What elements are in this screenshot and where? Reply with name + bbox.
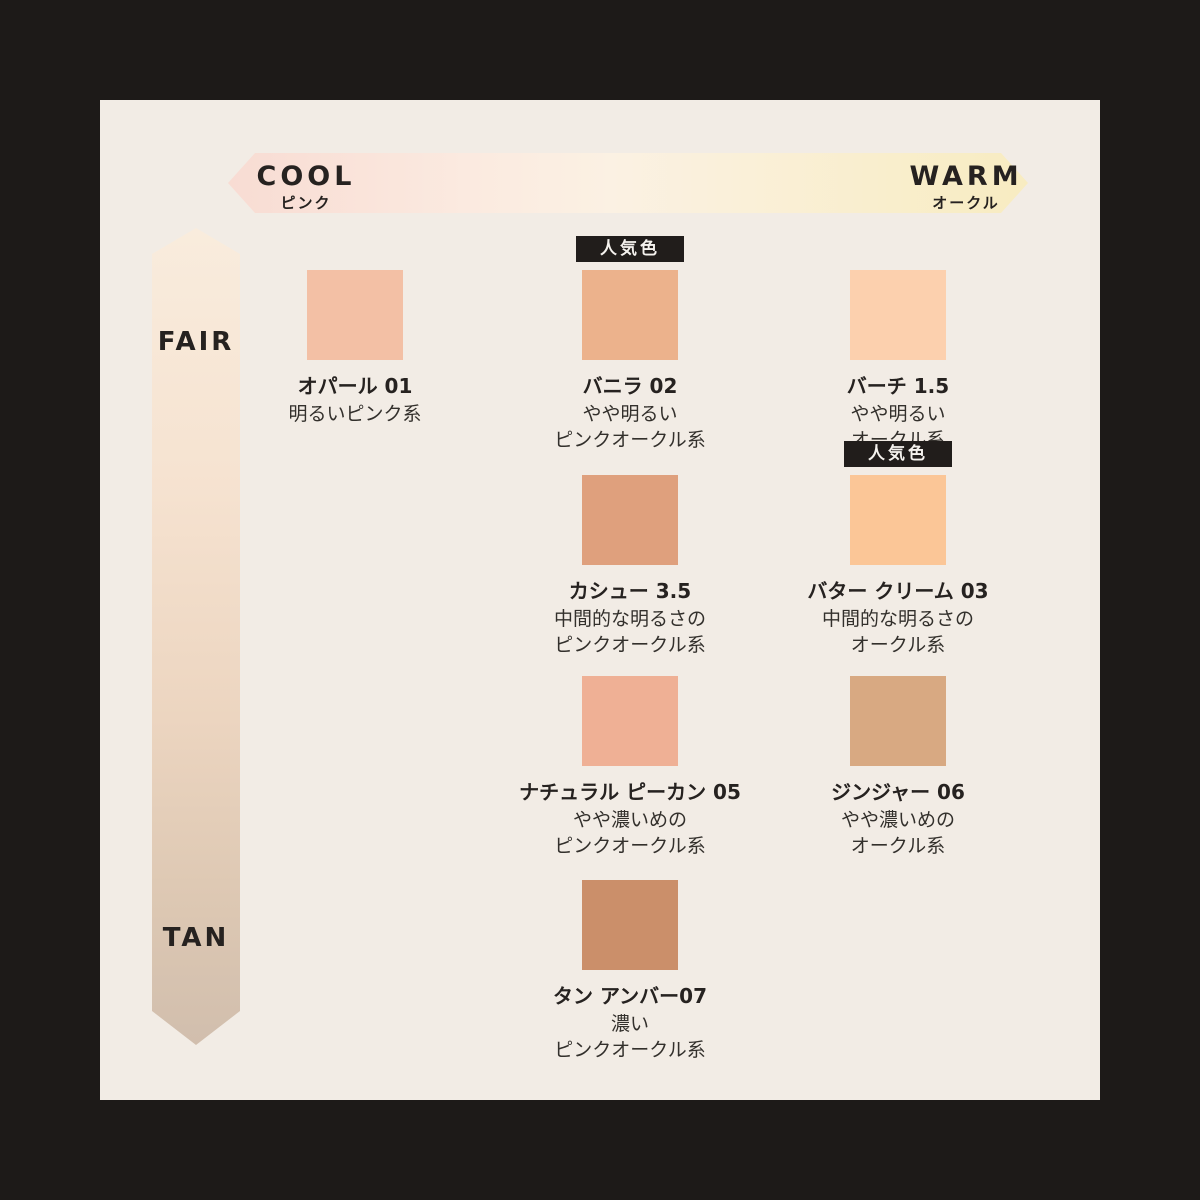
shade-name: カシュー 3.5 — [569, 579, 691, 603]
shade-name: バーチ 1.5 — [847, 374, 949, 398]
shade-name: バター クリーム 03 — [807, 579, 988, 603]
shade-desc-line1: やや明るい — [554, 401, 705, 427]
shade-swatch — [582, 270, 678, 360]
shade-swatch — [582, 676, 678, 766]
shade-description: 明るいピンク系 — [288, 401, 421, 427]
shade-swatch — [850, 475, 946, 565]
shade-desc-line1: やや明るい — [850, 401, 945, 427]
shade-chart-panel: COOL ピンク WARM オークル FAIR TAN オパール 01 明るいピ… — [100, 100, 1100, 1100]
shade-name: タン アンバー07 — [553, 984, 707, 1008]
tan-axis-label: TAN — [116, 923, 276, 953]
shade-swatch — [307, 270, 403, 360]
shade-name: オパール 01 — [298, 374, 413, 398]
warm-sublabel-text: オークル — [886, 192, 1046, 214]
badge-slot: 人気色 — [576, 236, 684, 270]
popular-badge: 人気色 — [844, 441, 952, 467]
badge-slot: 人気色 — [844, 441, 952, 475]
shade-cell-natural-pecan-05: ナチュラル ピーカン 05 やや濃いめの ピンクオークル系 — [500, 642, 760, 859]
cool-sublabel-text: ピンク — [226, 192, 386, 214]
cool-axis-label: COOL ピンク — [226, 162, 386, 214]
shade-description: やや濃いめの オークル系 — [841, 807, 955, 859]
cool-label-text: COOL — [226, 162, 386, 192]
shade-swatch — [850, 676, 946, 766]
warm-axis-label: WARM オークル — [886, 162, 1046, 214]
shade-name: ナチュラル ピーカン 05 — [519, 780, 741, 804]
warm-label-text: WARM — [886, 162, 1046, 192]
shade-desc-line1: 中間的な明るさの — [554, 606, 706, 632]
shade-cell-birch-1-5: バーチ 1.5 やや明るい オークル系 — [768, 236, 1028, 453]
popular-badge: 人気色 — [576, 236, 684, 262]
shade-desc-line1: 明るいピンク系 — [288, 401, 421, 427]
shade-swatch — [582, 880, 678, 970]
shade-name: バニラ 02 — [583, 374, 678, 398]
shade-desc-line1: 中間的な明るさの — [822, 606, 974, 632]
shade-desc-line1: 濃い — [554, 1011, 705, 1037]
shade-swatch — [850, 270, 946, 360]
shade-desc-line2: ピンクオークル系 — [554, 1037, 705, 1063]
shade-cell-tan-amber-07: タン アンバー07 濃い ピンクオークル系 — [500, 846, 760, 1063]
shade-desc-line1: やや濃いめの — [841, 807, 955, 833]
shade-desc-line1: やや濃いめの — [554, 807, 705, 833]
shade-cell-vanilla-02: 人気色 バニラ 02 やや明るい ピンクオークル系 — [500, 236, 760, 453]
page-background: COOL ピンク WARM オークル FAIR TAN オパール 01 明るいピ… — [0, 0, 1200, 1200]
shade-cell-ginger-06: ジンジャー 06 やや濃いめの オークル系 — [768, 642, 1028, 859]
shade-swatch — [582, 475, 678, 565]
shade-description: 濃い ピンクオークル系 — [554, 1011, 705, 1063]
shade-desc-line2: オークル系 — [841, 833, 955, 859]
shade-cell-opal-01: オパール 01 明るいピンク系 — [225, 236, 485, 427]
shade-name: ジンジャー 06 — [831, 780, 965, 804]
shade-cell-cashew-3-5: カシュー 3.5 中間的な明るさの ピンクオークル系 — [500, 441, 760, 658]
shade-cell-butter-cream-03: 人気色 バター クリーム 03 中間的な明るさの オークル系 — [768, 441, 1028, 658]
